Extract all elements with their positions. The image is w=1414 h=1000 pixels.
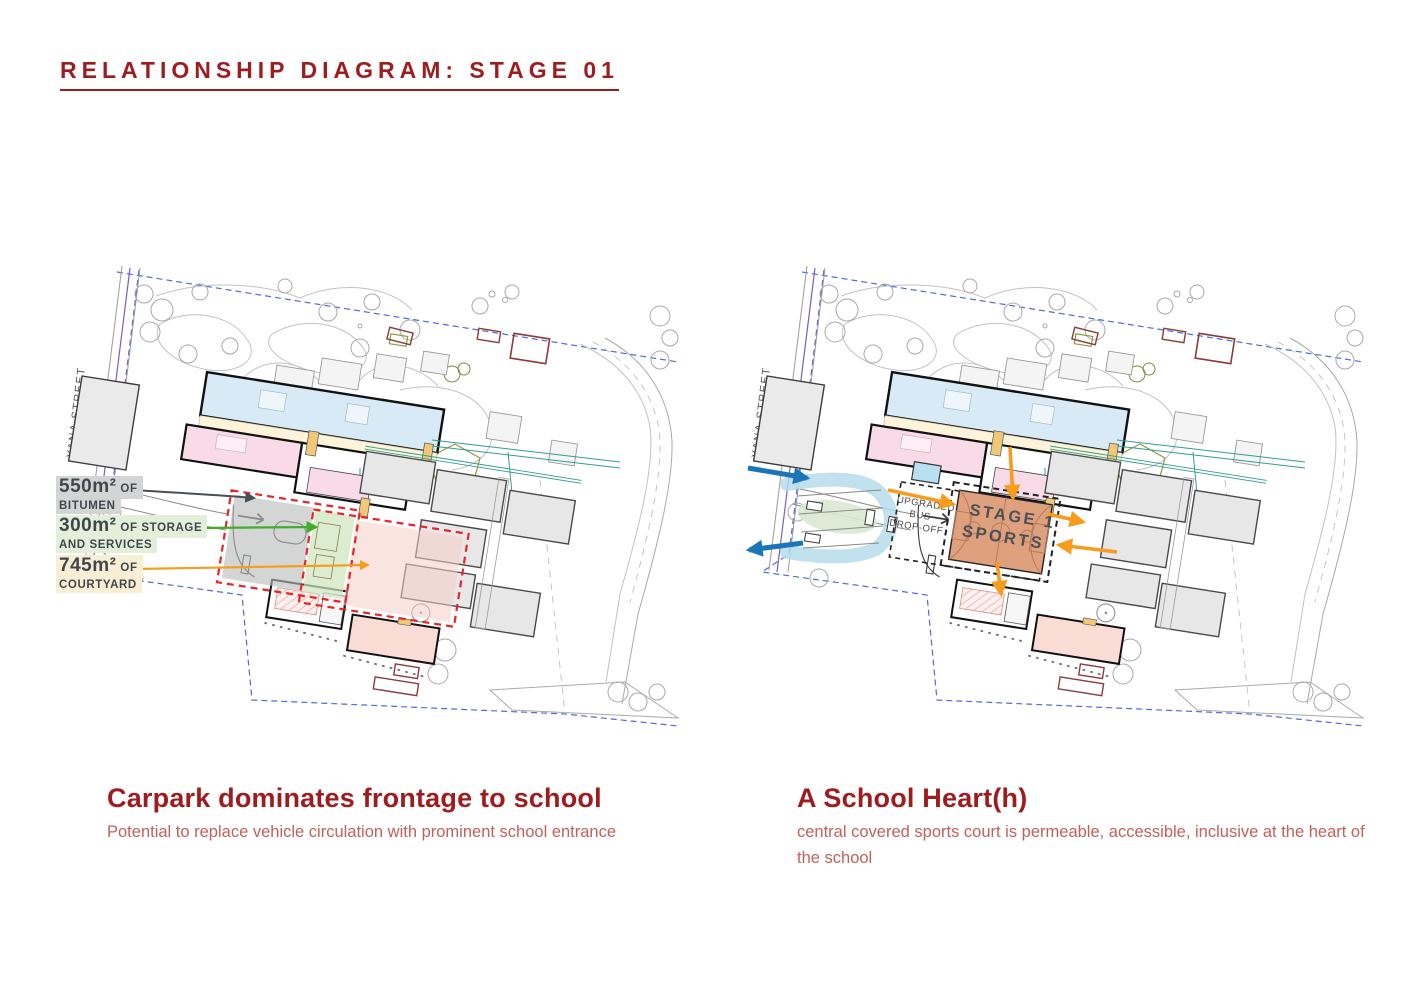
right-caption-subtitle: central covered sports court is permeabl… xyxy=(797,820,1382,871)
relationship-diagram-page: RELATIONSHIP DIAGRAM: STAGE 01 xyxy=(0,0,1414,1000)
site-plan-stage1-existing: YANA STREET xyxy=(60,262,680,747)
storage-amount: 300m² xyxy=(59,515,116,536)
bitumen-amount: 550m² xyxy=(59,476,116,497)
storage-label: 300m²OF STORAGE AND SERVICES xyxy=(56,515,207,553)
left-caption: Carpark dominates frontage to school Pot… xyxy=(107,783,692,846)
bus-in-arrow xyxy=(748,468,807,478)
site-plan-stage1-proposed: STAGE 1 SPORTS UPGRADED BUS DROP-OFF xyxy=(745,262,1365,747)
courtyard-label: 745m²OF COURTYARD xyxy=(56,555,143,593)
right-caption-title: A School Heart(h) xyxy=(797,783,1382,814)
left-caption-subtitle: Potential to replace vehicle circulation… xyxy=(107,820,692,846)
bitumen-zone xyxy=(222,495,314,590)
courtyard-zone xyxy=(343,520,463,622)
bitumen-label: 550m²OF BITUMEN xyxy=(56,476,143,514)
page-title: RELATIONSHIP DIAGRAM: STAGE 01 xyxy=(60,57,619,91)
site-plan-right-svg: STAGE 1 SPORTS UPGRADED BUS DROP-OFF xyxy=(745,262,1365,747)
bus-dropoff-loop xyxy=(787,480,897,557)
courtyard-amount: 745m² xyxy=(59,555,116,576)
site-plan-left-svg: YANA STREET xyxy=(60,262,680,747)
left-caption-title: Carpark dominates frontage to school xyxy=(107,783,692,814)
entry-pavilion xyxy=(912,462,941,484)
right-caption: A School Heart(h) central covered sports… xyxy=(797,783,1382,871)
storage-arrow xyxy=(200,527,316,528)
